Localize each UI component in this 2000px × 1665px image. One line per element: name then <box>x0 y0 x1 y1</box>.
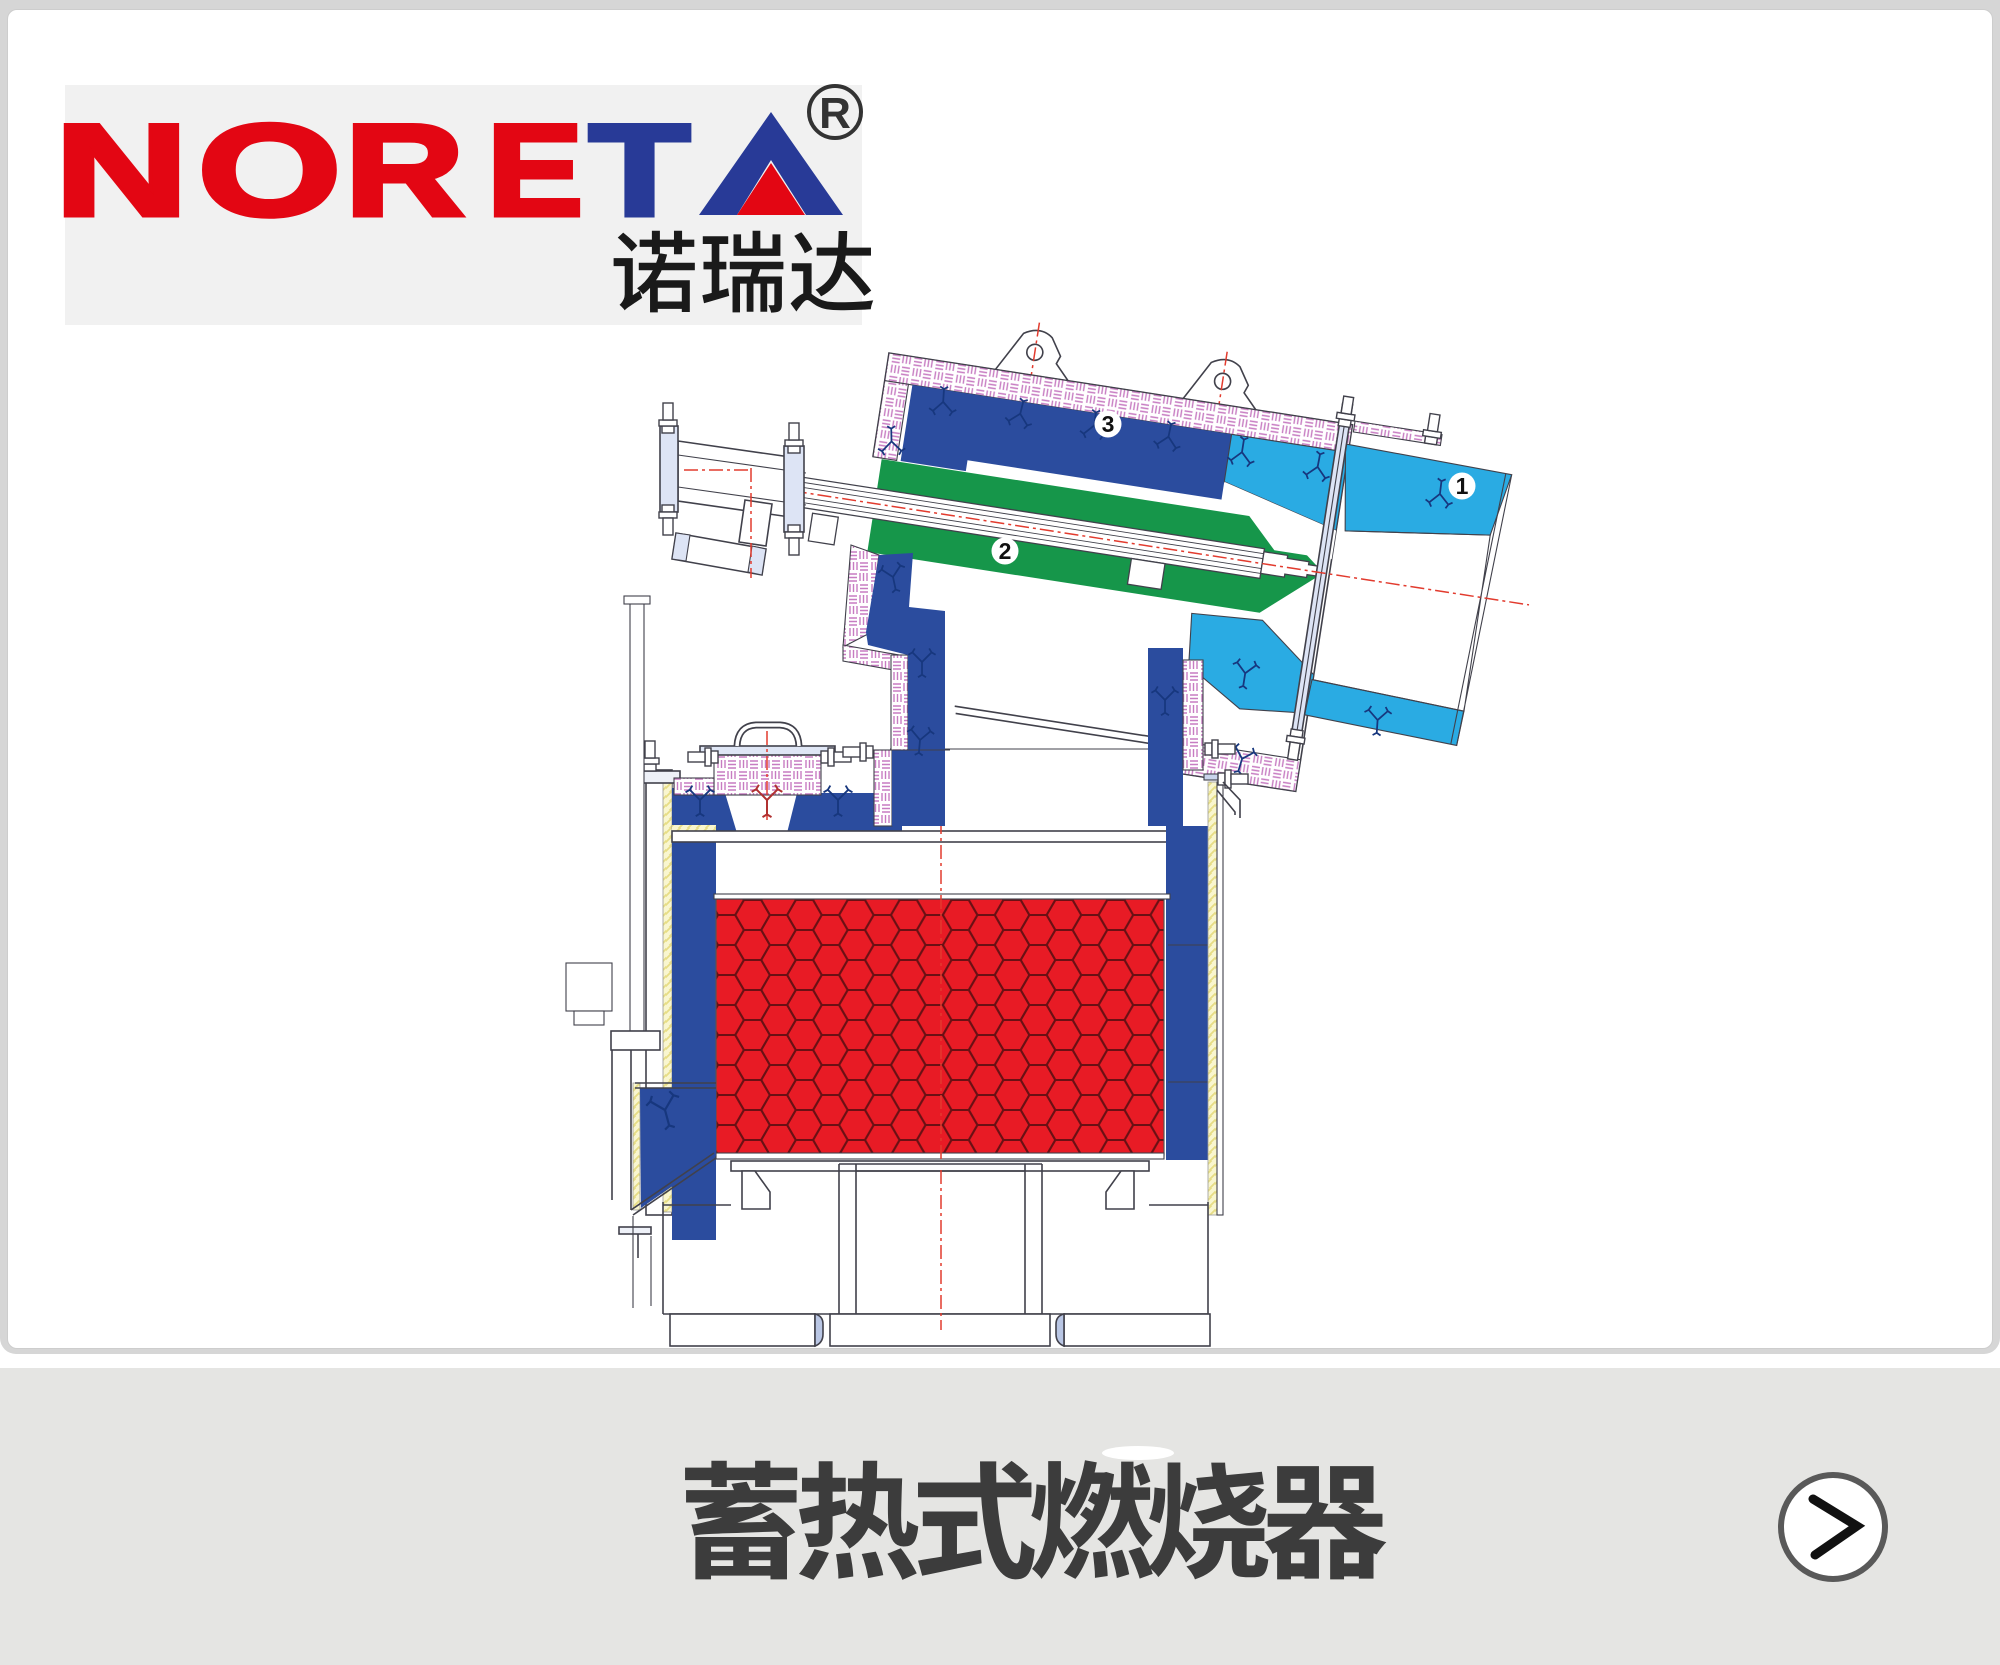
svg-text:T: T <box>589 97 690 243</box>
svg-text:N: N <box>55 97 188 243</box>
svg-text:R: R <box>345 97 464 243</box>
svg-text:E: E <box>487 97 583 243</box>
svg-text:R: R <box>819 89 851 138</box>
svg-text:O: O <box>198 97 341 243</box>
